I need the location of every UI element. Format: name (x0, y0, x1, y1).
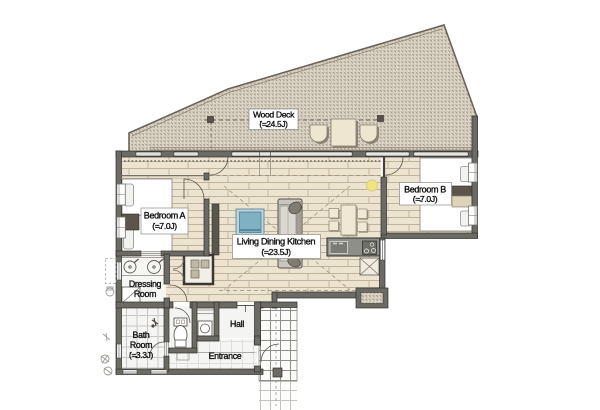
svg-text:(=23.5J): (=23.5J) (261, 247, 291, 257)
svg-text:(=3.3J): (=3.3J) (129, 350, 153, 360)
svg-text:Room: Room (134, 289, 156, 299)
svg-text:Living Dining Kitchen: Living Dining Kitchen (237, 237, 316, 247)
svg-text:Bedroom A: Bedroom A (144, 210, 186, 220)
svg-text:Hall: Hall (230, 319, 244, 329)
svg-text:Bedroom B: Bedroom B (404, 184, 446, 194)
svg-text:(=24.5J): (=24.5J) (259, 119, 288, 129)
svg-text:(=7.0J): (=7.0J) (413, 194, 438, 204)
svg-text:Room: Room (130, 340, 152, 350)
svg-text:Entrance: Entrance (209, 351, 242, 361)
svg-text:Dressing: Dressing (129, 279, 162, 289)
svg-text:(=7.0J): (=7.0J) (152, 221, 177, 231)
svg-text:Bath: Bath (133, 330, 150, 340)
